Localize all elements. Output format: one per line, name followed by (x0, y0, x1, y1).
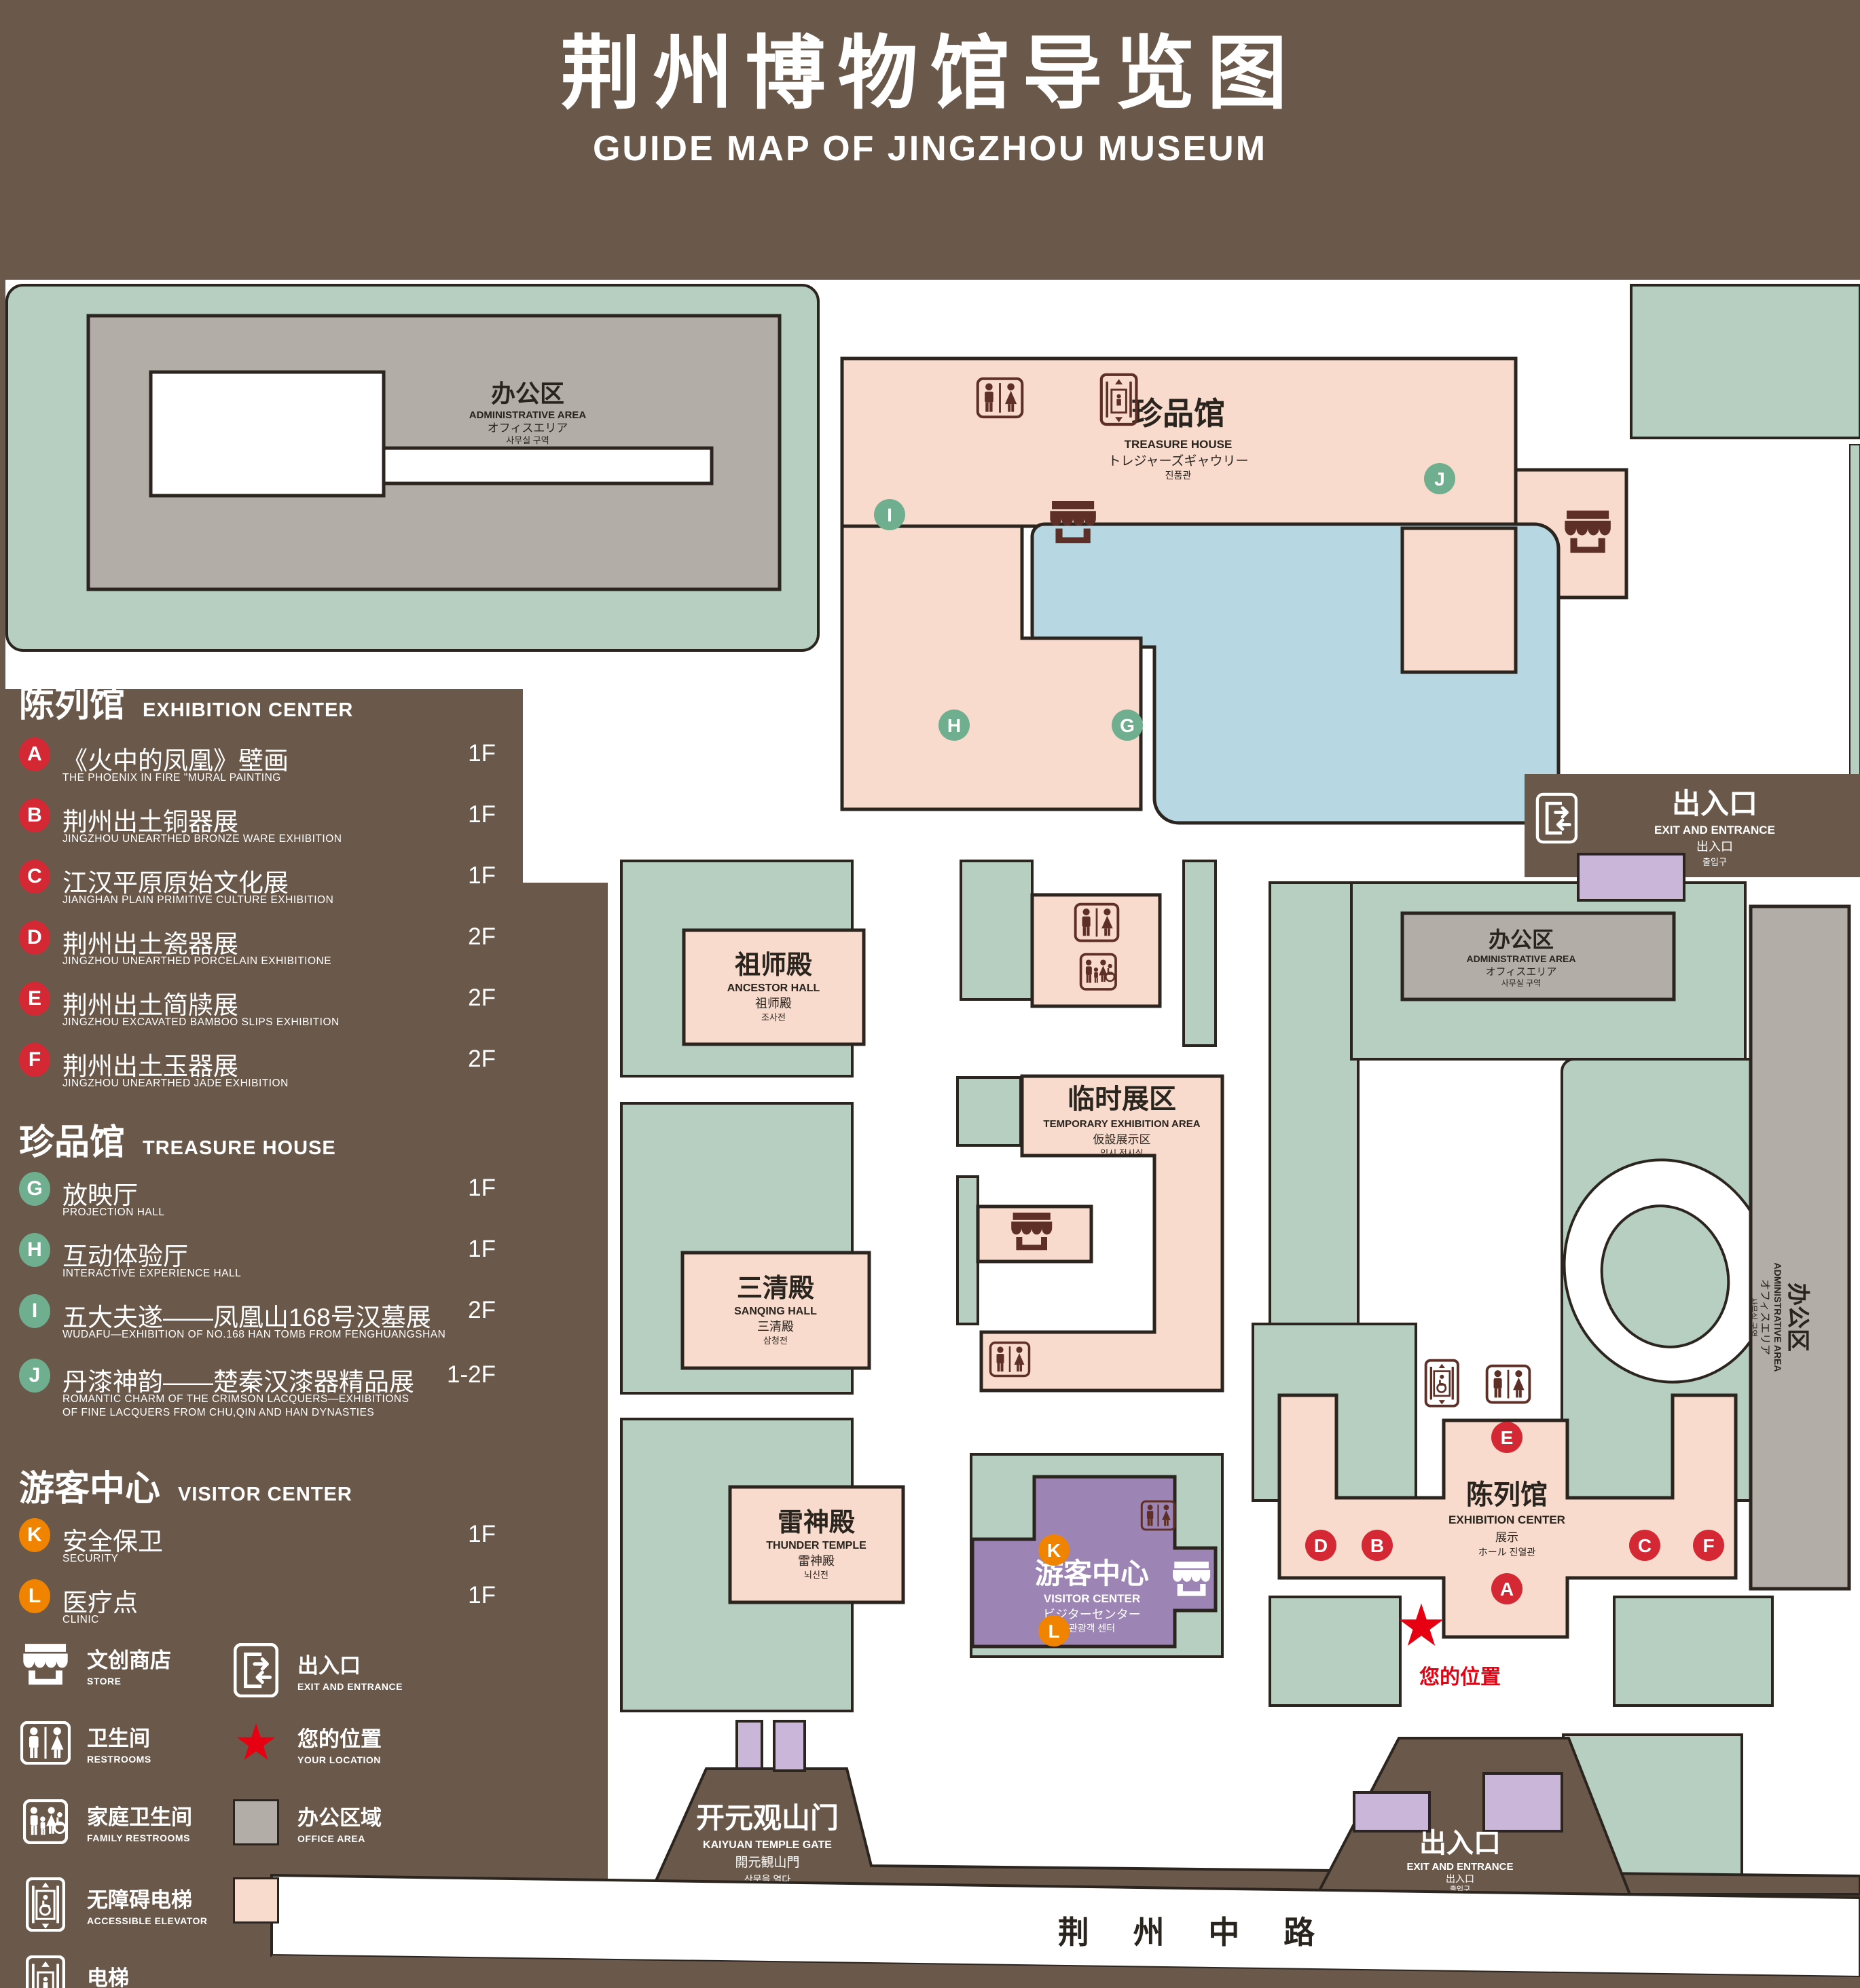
svg-text:C: C (1638, 1535, 1652, 1556)
green-exhibition-se (1614, 1597, 1772, 1706)
marker-K: K (1038, 1534, 1070, 1566)
temp-ko: 임시 전시실 (1100, 1148, 1143, 1158)
admin-label-ko: 사무실 구역 (506, 435, 549, 445)
svg-text:J: J (1434, 468, 1445, 490)
exhibition-ko: ホール 진열관 (1478, 1547, 1536, 1558)
hall-en: SANQING HALL (734, 1306, 817, 1317)
admin-label-ja: オフィスエリア (488, 422, 568, 435)
legend-display-area: 展示区域DISPLAY AREA (230, 1877, 382, 1923)
green-exhibition-sw (1270, 1597, 1400, 1706)
hall-ko: 삼청전 (763, 1336, 788, 1346)
svg-text:I: I (887, 504, 892, 526)
item-floor: 1F (468, 740, 496, 767)
marker-badge: F (19, 1043, 50, 1077)
section-treasure-house: 珍品馆 TREASURE HOUSE (19, 1113, 336, 1164)
label-zh: 无障碍电梯 (87, 1883, 208, 1913)
marker-badge: C (19, 860, 50, 894)
exit-tr-ja: 出入口 (1696, 840, 1733, 853)
marker-D: D (1305, 1530, 1336, 1561)
treasure-label-ja: トレジャーズギャウリー (1108, 454, 1248, 468)
hall-en: ANCESTOR HALL (727, 982, 820, 994)
road-label: 荆 州 中 路 (1058, 1915, 1332, 1950)
admin-label-en: ADMINISTRATIVE AREA (1467, 953, 1576, 964)
page-title: 荆州博物馆导览图 (0, 8, 1860, 124)
svg-text:L: L (1048, 1621, 1059, 1642)
green-strip-1 (961, 861, 1032, 999)
svg-text:E: E (1501, 1427, 1514, 1448)
exit-tr-en: EXIT AND ENTRANCE (1654, 824, 1775, 836)
admin-building (1751, 906, 1849, 1589)
green-temp-left-a (958, 1078, 1021, 1145)
treasure-label-zh: 珍品馆 (1131, 396, 1225, 431)
store-icon (19, 1644, 72, 1687)
legend-restrooms: 卫生间RESTROOMS (19, 1721, 151, 1765)
exhibition-en: EXHIBITION CENTER (1448, 1513, 1565, 1526)
marker-badge: I (19, 1294, 50, 1328)
section-title-en: EXHIBITION CENTER (143, 699, 353, 722)
svg-text:D: D (1314, 1535, 1328, 1556)
thunder-temple: 雷神殿 THUNDER TEMPLE 雷神殿 뇌신전 (730, 1487, 903, 1602)
exit-b-ja: 出入口 (1446, 1873, 1474, 1884)
elevator-icon (19, 1955, 72, 1988)
item-en: JINGZHOU UNEARTHED PORCELAIN EXHIBITIONE (62, 955, 470, 968)
item-en: SECURITY (62, 1552, 470, 1566)
item-en: WUDAFU—EXHIBITION OF NO.168 HAN TOMB FRO… (62, 1328, 470, 1342)
item-en: JINGZHOU UNEARTHED JADE EXHIBITION (62, 1077, 470, 1090)
item-floor: 2F (468, 923, 496, 951)
treasure-south-wing (1402, 528, 1516, 672)
item-floor: 1F (468, 1175, 496, 1202)
label-zh: 出入口 (297, 1649, 403, 1679)
label-zh: 文创商店 (87, 1643, 171, 1674)
svg-text:B: B (1370, 1535, 1384, 1556)
marker-I: I (874, 499, 905, 530)
restroom-icon (19, 1721, 72, 1765)
exit-b-zh: 出入口 (1419, 1828, 1501, 1858)
hall-ko: 조사전 (761, 1012, 786, 1023)
item-en: THE PHOENIX IN FIRE "MURAL PAINTING (62, 771, 470, 785)
item-floor: 2F (468, 1046, 496, 1073)
label-zh: 展示区域 (297, 1879, 382, 1909)
svg-text:H: H (947, 715, 961, 736)
legend-elevator: 电梯Elevator (19, 1955, 129, 1988)
temp-ja: 仮設展示区 (1093, 1133, 1151, 1146)
item-en: PROJECTION HALL (62, 1206, 470, 1219)
item-floor: 1F (468, 1521, 496, 1548)
legend-your-location: 您的位置YOUR LOCATION (230, 1721, 382, 1766)
marker-A: A (1491, 1573, 1522, 1604)
admin-label-ja: オフィスエリア (1759, 1279, 1770, 1355)
marker-badge: K (19, 1518, 50, 1552)
section-visitor-center: 游客中心 VISITOR CENTER (19, 1460, 352, 1511)
item-floor: 2F (468, 984, 496, 1012)
item-en: JINGZHOU UNEARTHED BRONZE WARE EXHIBITIO… (62, 832, 470, 846)
gate-ja: 開元観山門 (735, 1855, 799, 1870)
item-floor: 1F (468, 1582, 496, 1609)
green-right-sliver (1850, 445, 1860, 777)
marker-L: L (1038, 1615, 1070, 1646)
exit-tr-ko: 출입구 (1702, 857, 1727, 867)
item-floor: 1-2F (447, 1361, 496, 1388)
marker-F: F (1693, 1530, 1724, 1561)
exit-tr-zh: 出入口 (1672, 788, 1757, 820)
label-en: FAMILY RESTROOMS (87, 1833, 192, 1843)
section-title-en: VISITOR CENTER (178, 1484, 352, 1506)
hall-ko: 뇌신전 (804, 1570, 828, 1580)
gate-en: KAIYUAN TEMPLE GATE (703, 1839, 832, 1851)
accessible-elevator-icon (19, 1877, 72, 1932)
item-floor: 1F (468, 862, 496, 889)
legend-store: 文创商店STORE (19, 1643, 171, 1687)
sanqing-hall: 三清殿 SANQING HALL 三清殿 삼청전 (682, 1253, 869, 1368)
label-zh: 家庭卫生间 (87, 1800, 192, 1830)
gate-pillar (737, 1721, 762, 1769)
label-zh: 卫生间 (87, 1721, 151, 1752)
treasure-label-ko: 진품관 (1165, 470, 1192, 481)
item-floor: 1F (468, 1236, 496, 1263)
exit-booth (1354, 1792, 1429, 1831)
label-zh: 电梯 (87, 1961, 129, 1988)
treasure-house-complex: 珍品馆 TREASURE HOUSE トレジャーズギャウリー 진품관 (842, 358, 1626, 823)
marker-badge: E (19, 982, 50, 1016)
item-en: INTERACTIVE EXPERIENCE HALL (62, 1267, 470, 1281)
marker-badge: H (19, 1233, 50, 1267)
marker-badge: G (19, 1172, 50, 1206)
marker-B: B (1362, 1530, 1393, 1561)
gate-pillar (774, 1721, 805, 1771)
hall-ja: 三清殿 (757, 1320, 794, 1333)
marker-E: E (1491, 1422, 1522, 1453)
admin-courtyard-1 (151, 372, 384, 496)
marker-badge: B (19, 798, 50, 832)
admin-courtyard-2 (384, 448, 712, 483)
section-title-en: TREASURE HOUSE (143, 1137, 336, 1160)
svg-text:F: F (1702, 1535, 1714, 1556)
admin-label-ko: 사무실 구역 (1501, 978, 1542, 988)
temp-en: TEMPORARY EXHIBITION AREA (1043, 1118, 1200, 1130)
admin-label-en: ADMINISTRATIVE AREA (1772, 1263, 1783, 1372)
exhibition-ja: 展示 (1495, 1531, 1518, 1544)
label-zh: 您的位置 (297, 1722, 382, 1752)
green-top-right (1631, 285, 1860, 438)
legend-office-area: 办公区域OFFICE AREA (230, 1799, 382, 1845)
admin-label-ko: 사무실 구역 (1749, 1297, 1758, 1338)
section-exhibition-center: 陈列馆 EXHIBITION CENTER (19, 676, 353, 726)
svg-text:K: K (1047, 1540, 1061, 1561)
hall-zh: 祖师殿 (735, 951, 812, 980)
section-title-zh: 珍品馆 (19, 1113, 125, 1164)
marker-C: C (1629, 1530, 1660, 1561)
item-floor: 2F (468, 1297, 496, 1324)
admin-label-ja: オフィスエリア (1486, 966, 1557, 978)
svg-text:G: G (1120, 715, 1135, 736)
marker-J: J (1424, 463, 1455, 494)
hall-ja: 祖师殿 (755, 997, 792, 1010)
item-floor: 1F (468, 801, 496, 828)
your-location-star-icon (230, 1721, 282, 1766)
legend-family-restrooms: 家庭卫生间FAMILY RESTROOMS (19, 1799, 192, 1844)
hall-ja: 雷神殿 (798, 1554, 835, 1568)
visitor-en: VISITOR CENTER (1044, 1592, 1140, 1605)
marker-badge: A (19, 737, 50, 771)
green-temp-left-b (958, 1177, 978, 1324)
section-title-zh: 游客中心 (19, 1460, 160, 1511)
admin-label-zh: 办公区 (1785, 1283, 1810, 1352)
exit-icon (230, 1643, 282, 1697)
exit-booth (1578, 854, 1684, 900)
item-en: ROMANTIC CHARM OF THE CRIMSON LACQUERS—E… (62, 1393, 470, 1420)
marker-H: H (938, 710, 970, 741)
item-en: JIANGHAN PLAIN PRIMITIVE CULTURE EXHIBIT… (62, 894, 470, 907)
marker-G: G (1112, 710, 1143, 741)
treasure-label-en: TREASURE HOUSE (1125, 438, 1233, 451)
admin-label-zh: 办公区 (491, 380, 564, 407)
admin-strip-right: 办公区 ADMINISTRATIVE AREA オフィスエリア 사무실 구역 (1749, 906, 1849, 1589)
guide-map-page: 办公区 ADMINISTRATIVE AREA オフィスエリア 사무실 구역 珍… (0, 0, 1860, 1988)
label-en: STORE (87, 1676, 171, 1687)
hall-zh: 雷神殿 (778, 1509, 855, 1537)
office-area-swatch (230, 1799, 282, 1845)
legend-accessible-elevator: 无障碍电梯ACCESSIBLE ELEVATOR (19, 1877, 208, 1932)
label-en: YOUR LOCATION (297, 1754, 382, 1765)
label-en: ACCESSIBLE ELEVATOR (87, 1915, 208, 1926)
family-restroom-icon (19, 1799, 72, 1844)
green-strip-2 (1184, 861, 1216, 1046)
display-area-swatch (230, 1877, 282, 1923)
label-en: EXIT AND ENTRANCE (297, 1681, 403, 1692)
admin-building-midright: 办公区 ADMINISTRATIVE AREA オフィスエリア 사무실 구역 (1402, 913, 1674, 999)
label-en: DISPLAY AREA (297, 1911, 382, 1922)
ancestor-hall: 祖师殿 ANCESTOR HALL 祖师殿 조사전 (684, 930, 864, 1044)
visitor-ko: 관광객 센터 (1069, 1623, 1115, 1634)
admin-label-zh: 办公区 (1489, 927, 1554, 952)
marker-badge: D (19, 921, 50, 955)
svg-text:A: A (1500, 1579, 1514, 1600)
item-en: JINGZHOU EXCAVATED BAMBOO SLIPS EXHIBITI… (62, 1016, 470, 1029)
marker-badge: J (19, 1359, 50, 1393)
header: 荆州博物馆导览图 GUIDE MAP OF JINGZHOU MUSEUM (0, 0, 1860, 169)
hall-en: THUNDER TEMPLE (766, 1540, 867, 1551)
your-location-label: 您的位置 (1419, 1665, 1501, 1689)
label-en: RESTROOMS (87, 1754, 151, 1765)
central-restroom-block (1032, 895, 1160, 1006)
exit-booth (1484, 1773, 1562, 1831)
gate-zh: 开元观山门 (696, 1802, 839, 1834)
page-subtitle: GUIDE MAP OF JINGZHOU MUSEUM (0, 128, 1860, 169)
exhibition-zh: 陈列馆 (1466, 1480, 1548, 1510)
temp-zh: 临时展区 (1068, 1084, 1176, 1114)
exit-b-en: EXIT AND ENTRANCE (1407, 1861, 1514, 1873)
label-en: OFFICE AREA (297, 1833, 382, 1844)
admin-building-topleft: 办公区 ADMINISTRATIVE AREA オフィスエリア 사무실 구역 (88, 316, 780, 589)
admin-label-en: ADMINISTRATIVE AREA (469, 409, 587, 421)
hall-zh: 三清殿 (737, 1274, 814, 1303)
item-en: CLINIC (62, 1613, 470, 1627)
legend-exit: 出入口EXIT AND ENTRANCE (230, 1643, 403, 1697)
marker-badge: L (19, 1579, 50, 1613)
label-zh: 办公区域 (297, 1801, 382, 1831)
section-title-zh: 陈列馆 (19, 676, 125, 726)
